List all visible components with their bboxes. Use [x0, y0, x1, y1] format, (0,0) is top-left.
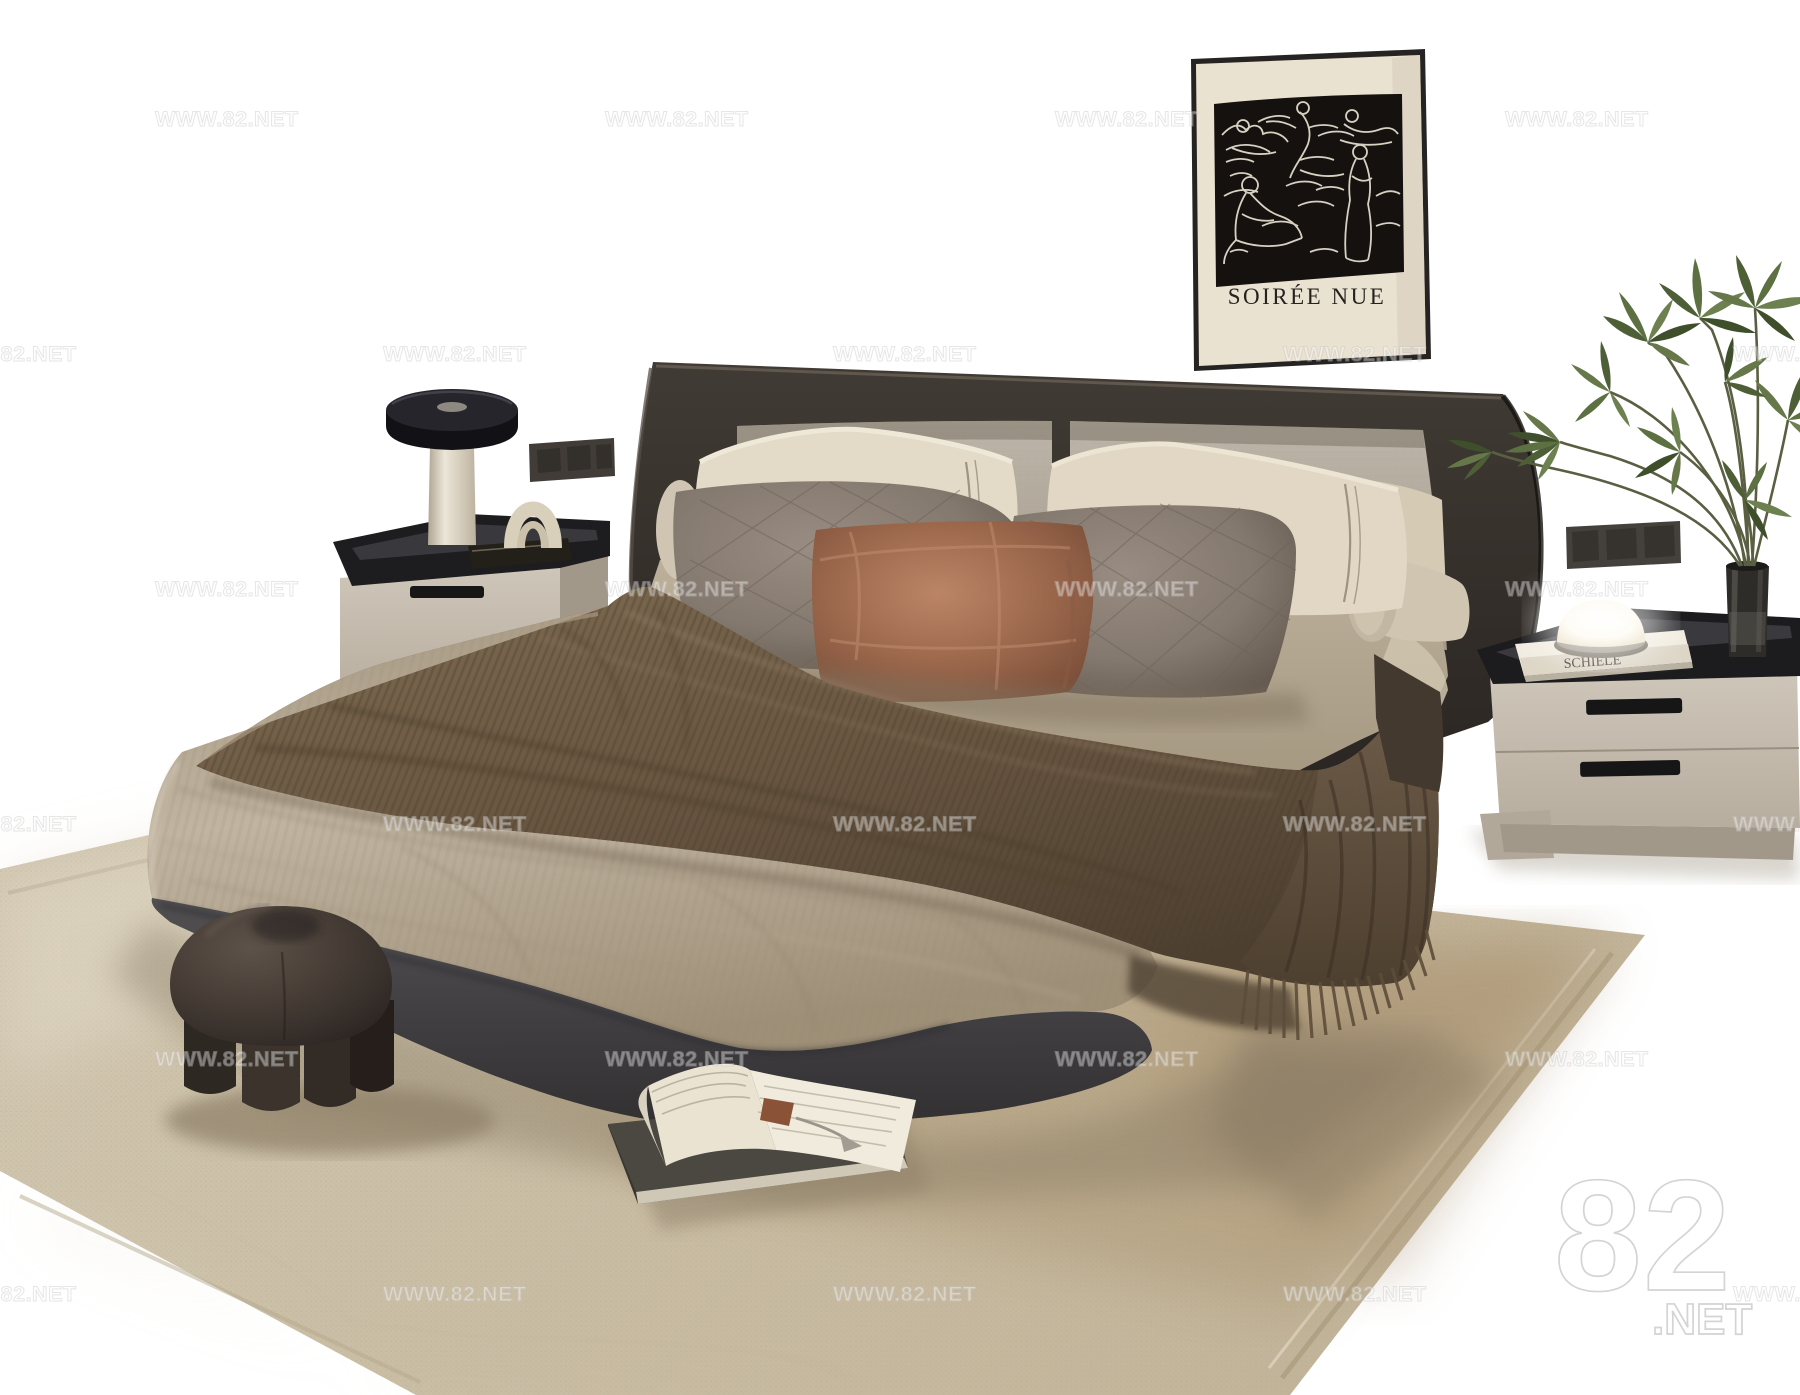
svg-text:WWW.82.NET: WWW.82.NET [1283, 1282, 1427, 1306]
svg-text:WWW.82.NET: WWW.82.NET [0, 1282, 77, 1306]
svg-text:SOIRÉE NUE: SOIRÉE NUE [1228, 284, 1387, 309]
svg-text:WWW.82.NET: WWW.82.NET [1505, 577, 1649, 601]
svg-text:WWW.82.NET: WWW.82.NET [383, 342, 527, 366]
svg-text:WWW.82.NET: WWW.82.NET [1055, 1047, 1199, 1071]
svg-text:WWW.82.NET: WWW.82.NET [155, 107, 299, 131]
svg-text:WWW.82.NET: WWW.82.NET [833, 1282, 977, 1306]
svg-text:WWW.82.NET: WWW.82.NET [605, 577, 749, 601]
svg-text:WWW.82.NET: WWW.82.NET [1733, 812, 1800, 836]
svg-text:WWW.82.NET: WWW.82.NET [1733, 1282, 1800, 1306]
svg-text:WWW.82.NET: WWW.82.NET [1283, 342, 1427, 366]
svg-text:WWW.82.NET: WWW.82.NET [605, 107, 749, 131]
svg-text:WWW.82.NET: WWW.82.NET [1055, 577, 1199, 601]
svg-text:WWW.82.NET: WWW.82.NET [1505, 107, 1649, 131]
svg-text:WWW.82.NET: WWW.82.NET [155, 1047, 299, 1071]
svg-text:WWW.82.NET: WWW.82.NET [1283, 812, 1427, 836]
svg-text:WWW.82.NET: WWW.82.NET [155, 577, 299, 601]
svg-text:WWW.82.NET: WWW.82.NET [0, 342, 77, 366]
svg-text:WWW.82.NET: WWW.82.NET [1505, 1047, 1649, 1071]
svg-text:WWW.82.NET: WWW.82.NET [833, 812, 977, 836]
svg-text:WWW.82.NET: WWW.82.NET [833, 342, 977, 366]
svg-text:WWW.82.NET: WWW.82.NET [1733, 342, 1800, 366]
svg-text:WWW.82.NET: WWW.82.NET [383, 812, 527, 836]
svg-text:WWW.82.NET: WWW.82.NET [1055, 107, 1199, 131]
svg-text:WWW.82.NET: WWW.82.NET [383, 1282, 527, 1306]
svg-text:WWW.82.NET: WWW.82.NET [605, 1047, 749, 1071]
svg-text:WWW.82.NET: WWW.82.NET [0, 812, 77, 836]
